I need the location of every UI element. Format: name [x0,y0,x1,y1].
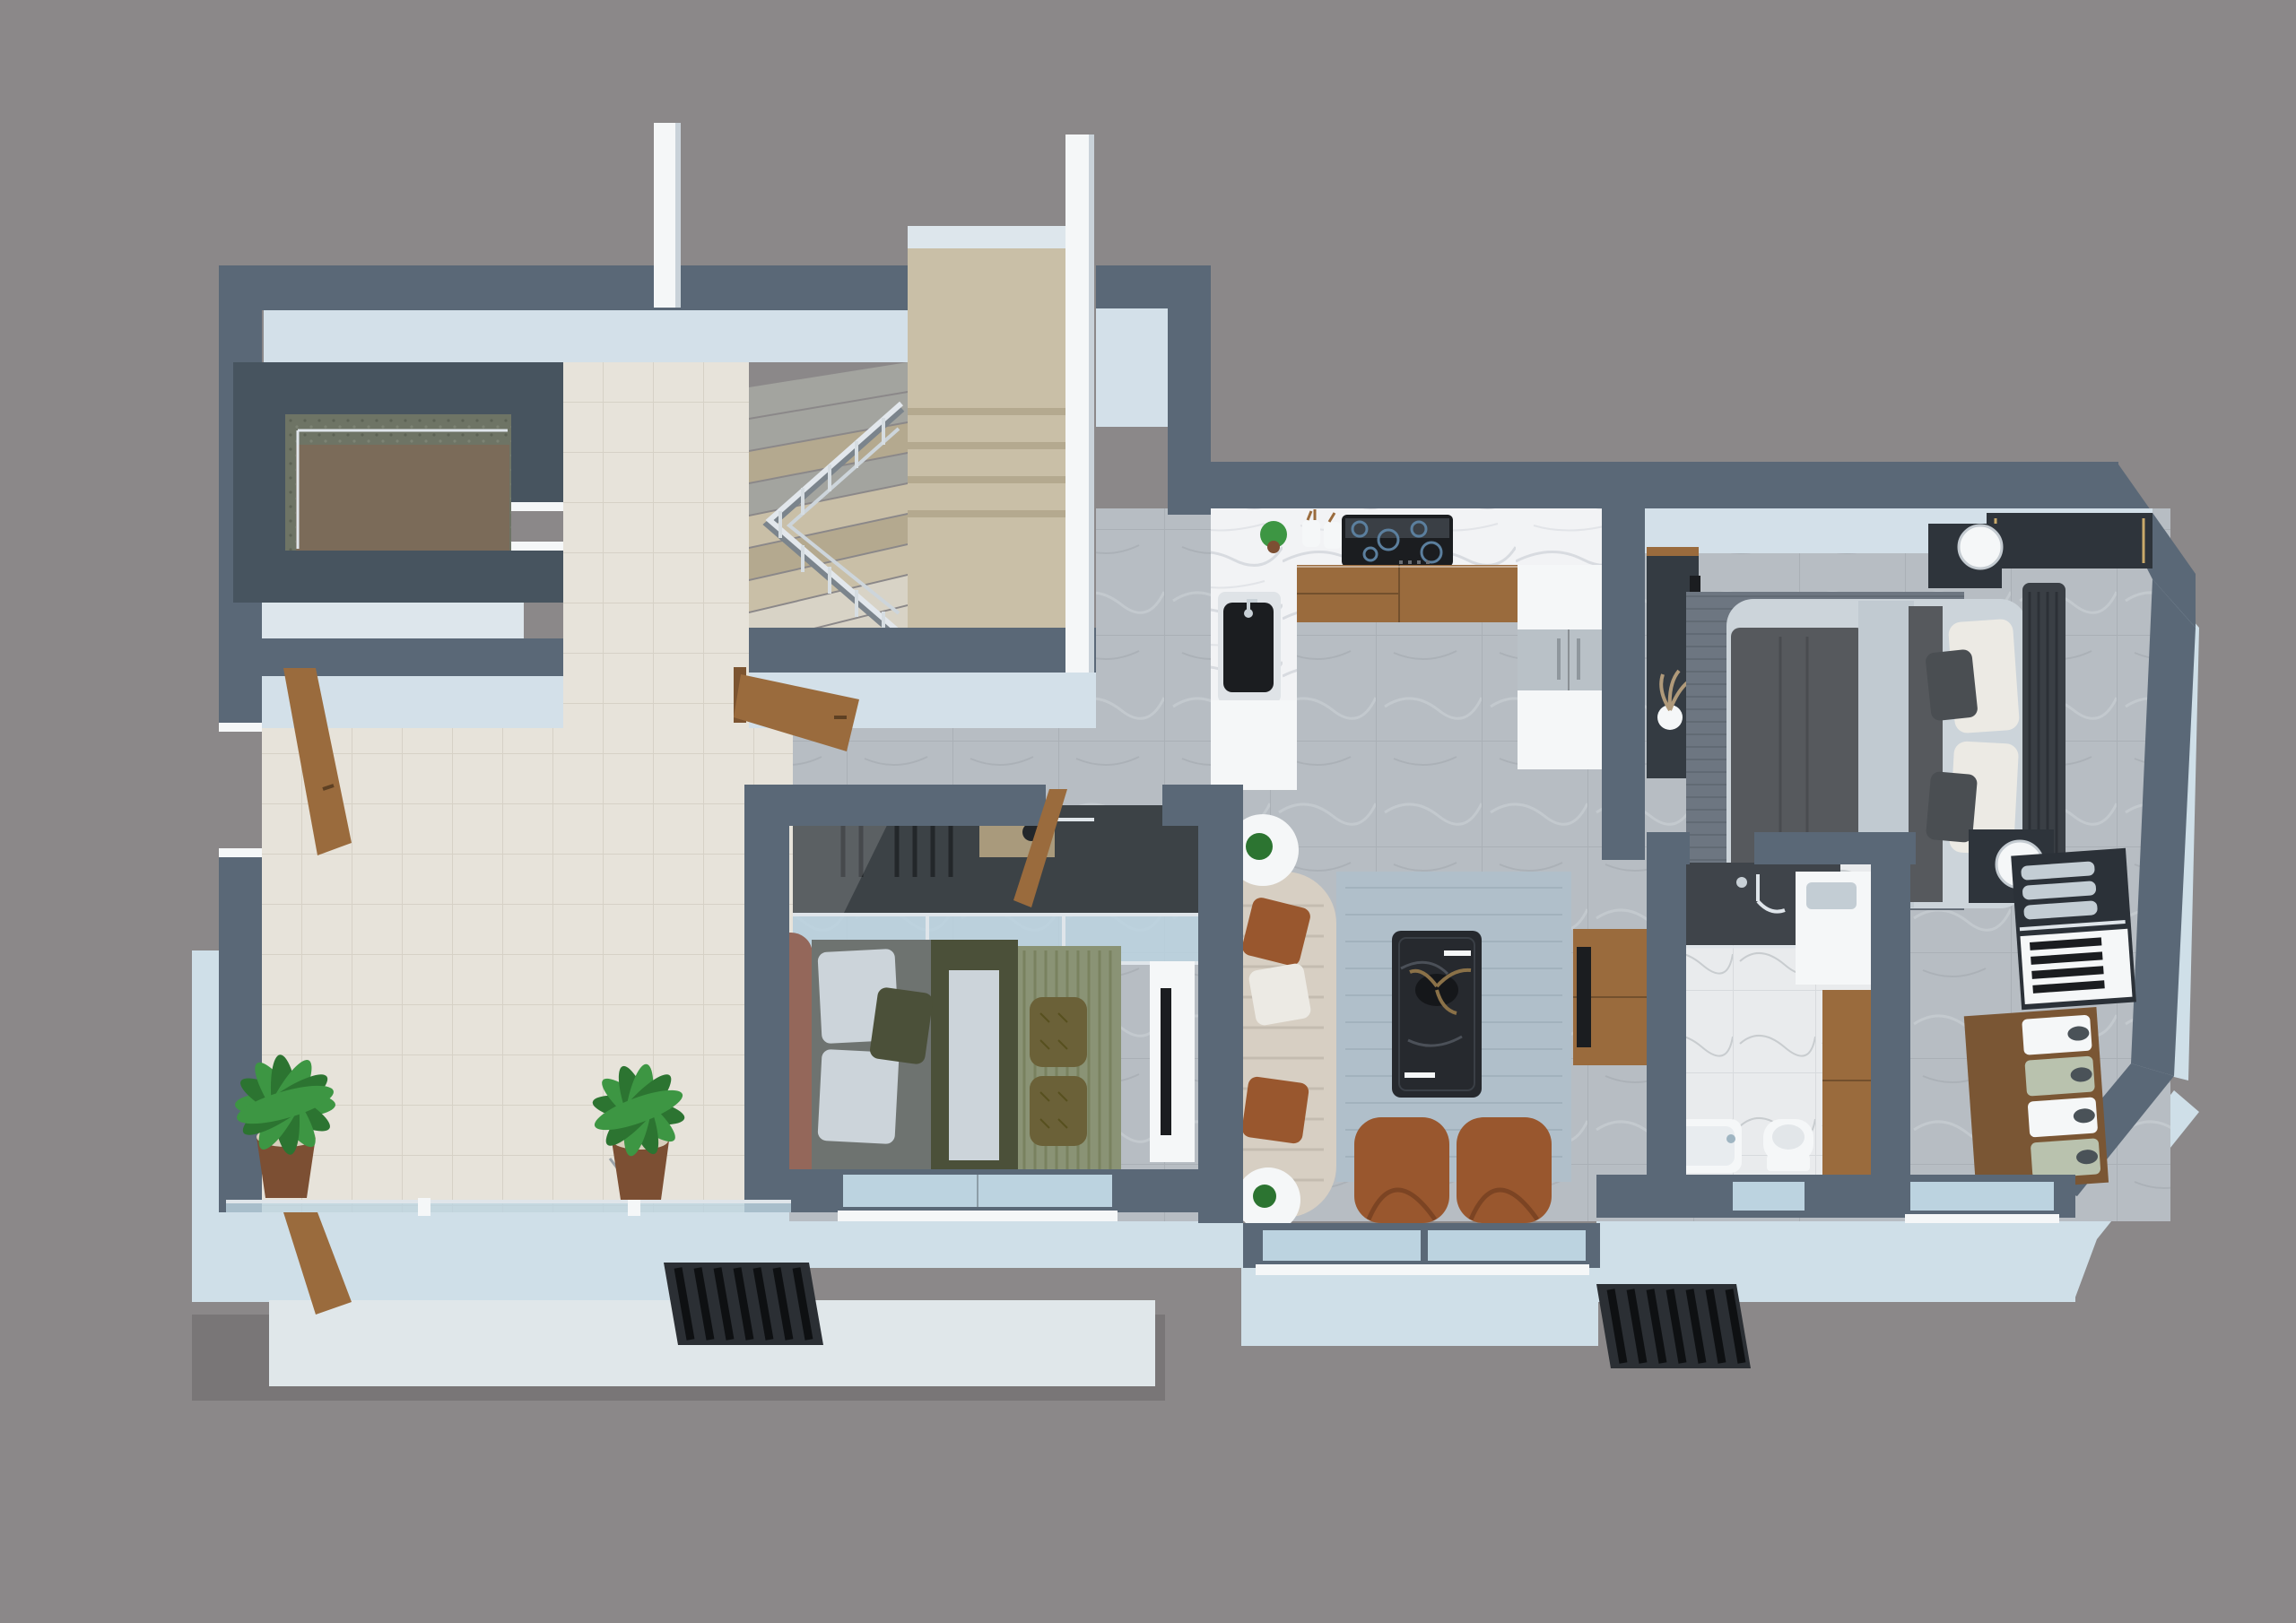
bath-wall-w [1647,858,1686,1175]
shower-head [1736,877,1747,888]
slab-living-apron [1241,1267,1598,1346]
utensil-jar [1324,522,1342,549]
bathroom [1647,832,1916,1175]
stair-lower-landing [908,517,1065,630]
sill-closet [1905,1214,2059,1223]
table-book [1444,950,1471,956]
toilet-tank [1767,1155,1810,1171]
wall-west-lower [219,850,262,1212]
stair-tread [908,381,1065,408]
slab-west [192,950,222,1302]
vent-grille-east [1596,1284,1751,1368]
bedroom2-wall-e [1198,785,1243,1223]
bedroom2-tv [1150,961,1195,1162]
floorplan-render [0,0,2296,1623]
window-living-1 [1263,1230,1421,1261]
bath-wall-n2 [1754,832,1916,864]
accent-pillow [1925,648,1979,721]
kitchen-cabinet-sw [1211,700,1297,790]
kitchen-sink [1218,592,1281,703]
stair-tread [908,483,1065,510]
side-table-plant [1246,833,1273,860]
master-wardrobe-n [1987,513,2152,568]
armchair [1354,1117,1449,1223]
armchair [1457,1117,1552,1223]
coffee-table [1392,931,1482,1098]
balustrade-clamp [628,1198,640,1216]
storage-floor [262,603,524,642]
table-book [1405,1072,1435,1078]
tv-screen2 [1161,988,1171,1135]
toilet [1763,1119,1813,1171]
wallface-stub [1096,308,1168,427]
elevator-shaft [233,362,563,603]
stair-tread-shadow [908,510,1065,517]
wall-stub-h [1096,265,1211,308]
wallface-nw-right [563,310,908,362]
stair-tread [908,449,1065,476]
bedroom2-wall-n1 [744,785,1046,826]
tv-stand2 [1150,961,1195,1162]
floor-tile-corridor [563,359,749,730]
bedroom2-wall-n2 [1162,785,1198,826]
wall-stub-v [1168,308,1211,515]
toilet-seat [1772,1124,1805,1150]
window-closet [1910,1182,2054,1211]
bath-wall-e [1871,864,1910,1175]
accent-pillow2 [869,986,935,1065]
counter-plant-pot [1267,541,1280,553]
wallface-nw-left [264,310,563,366]
sofa-pillow-brown [1241,1076,1310,1145]
stair-top-edge [908,226,1065,251]
vent-grille-west [664,1263,823,1345]
floorplan-svg [0,0,2296,1623]
entry-jamb-top [219,723,262,732]
side-table-plant [1253,1185,1276,1208]
elevator-door-jamb1 [511,502,563,511]
elevator-door-jamb2 [511,542,563,551]
sofa-pillow-white [1248,962,1312,1027]
entry-jamb-bottom [219,848,262,857]
pillow2 [817,1049,899,1144]
living-tv-console [1573,929,1647,1065]
balustrade-clamp [418,1198,430,1216]
window-bath [1733,1182,1805,1211]
console-tv [1577,947,1591,1047]
window-living-2 [1428,1230,1586,1261]
stair-tread-shadow [908,408,1065,415]
stair-fin-left-shade [675,123,681,308]
storage-wall-s [219,638,563,676]
bath-wood-cabinet [1822,990,1871,1175]
bed2 [761,933,1018,1202]
stair-landing [908,248,1065,381]
gas-hob [1342,515,1453,567]
nightstand-north [1928,524,2002,588]
wardrobe [793,805,1198,963]
wall-top-nw [219,265,908,310]
ottoman [1030,997,1087,1067]
sill-living [1256,1264,1589,1275]
ottoman [1030,1076,1087,1146]
elevator-floor [296,445,509,551]
tub-faucet [1726,1134,1735,1143]
tv-console-wood-top [1647,547,1699,556]
stair-right-flight [908,381,1065,630]
wall-top-kitchen-master [1211,462,2118,508]
stair-fin-right-shade [1089,135,1094,673]
vanity-towels [1806,882,1857,909]
utensil-jar [1302,520,1320,547]
elevator-wall-e [511,362,563,502]
sill-bedroom2 [838,1211,1118,1221]
bed2-runner [949,970,999,1160]
elevator-wall-s [233,551,563,603]
second-bedroom [744,785,1243,1223]
storage-niche [219,603,563,728]
stair-wall-s [749,628,1096,673]
bedroom2-wall-w [744,785,789,1212]
stair-tread-shadow [908,476,1065,483]
wall-kitchen-master [1602,508,1645,860]
bedroom2-rug [1018,946,1121,1197]
stair-tread [908,415,1065,442]
stair-tread-shadow [908,442,1065,449]
